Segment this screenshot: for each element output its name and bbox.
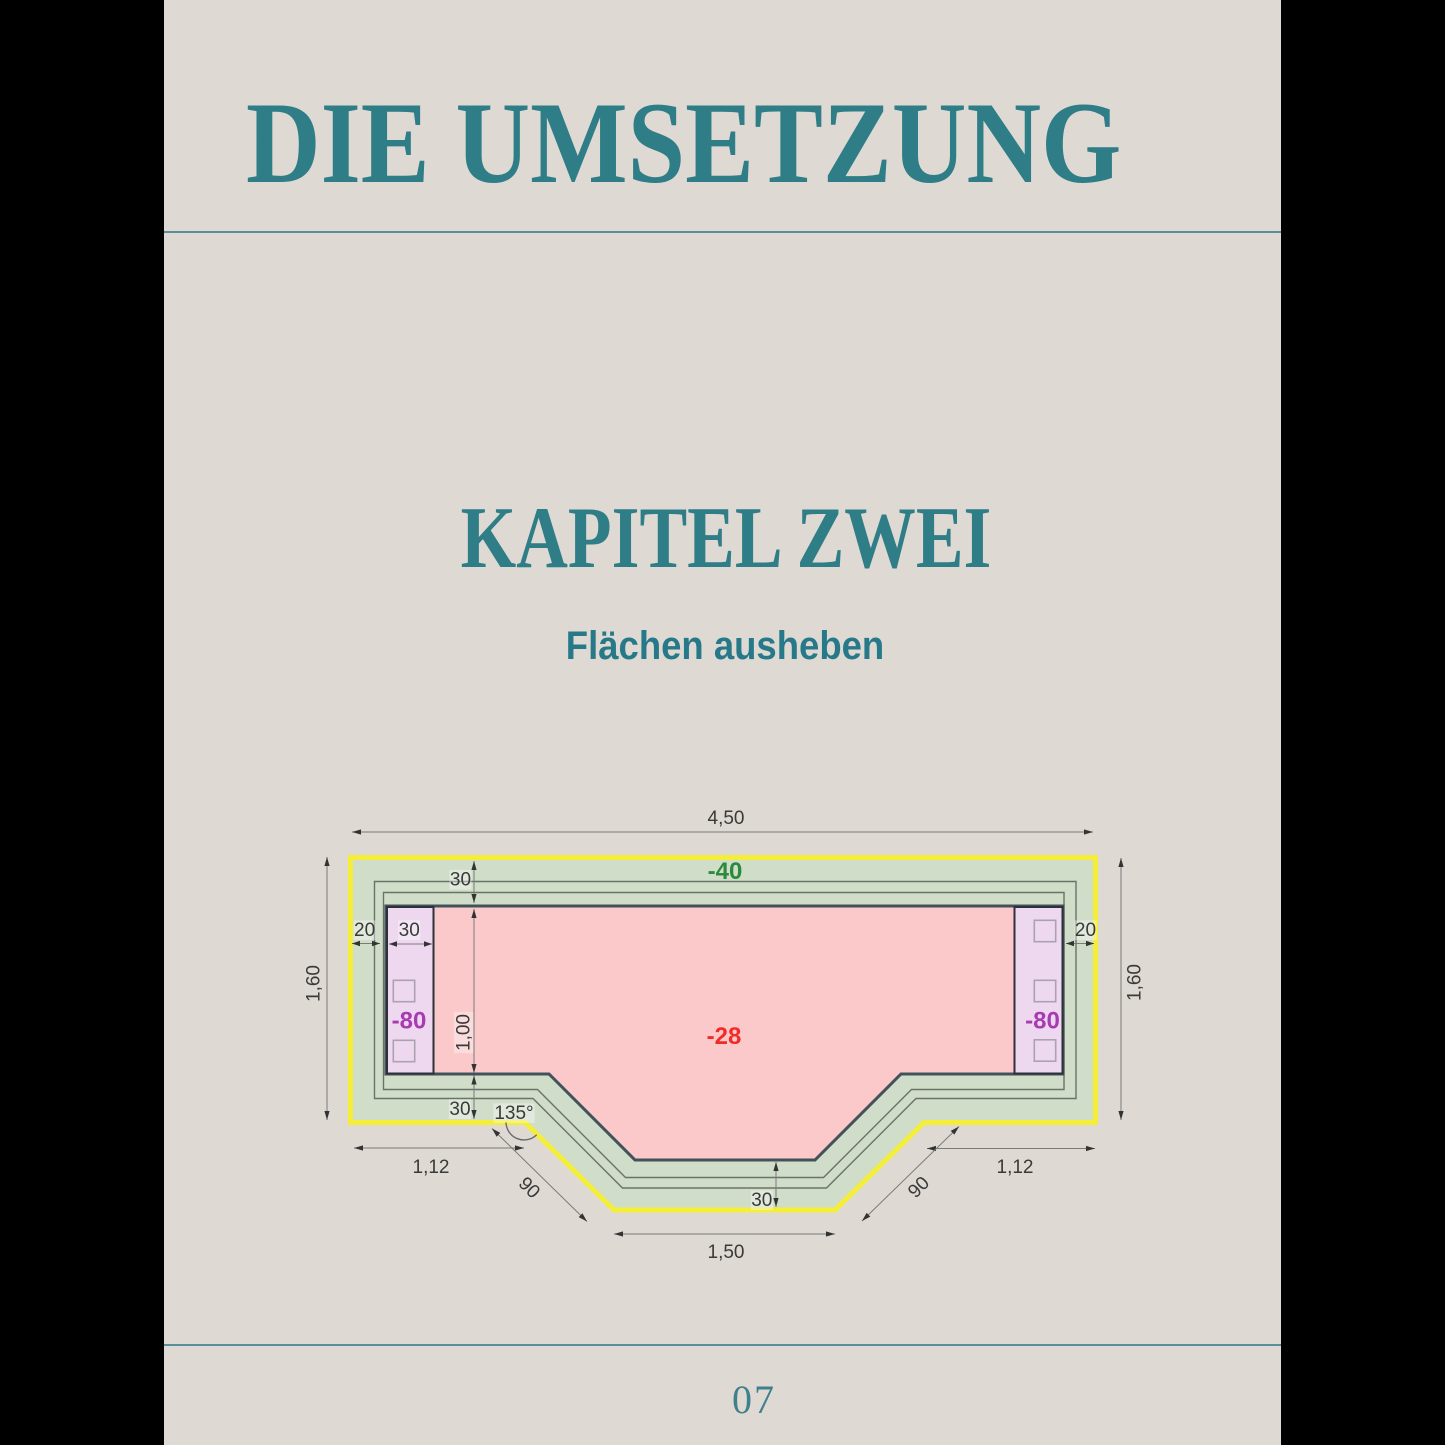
svg-text:-28: -28 [707,1023,742,1050]
svg-text:-80: -80 [392,1008,427,1035]
svg-text:-40: -40 [708,858,743,885]
svg-text:135°: 135° [494,1103,533,1124]
svg-text:20: 20 [354,920,375,941]
svg-text:1,50: 1,50 [708,1242,745,1263]
svg-text:1,12: 1,12 [997,1157,1034,1178]
svg-text:30: 30 [449,1099,470,1120]
svg-text:90: 90 [514,1173,544,1203]
svg-text:20: 20 [1075,920,1096,941]
svg-text:1,12: 1,12 [413,1157,450,1178]
svg-text:4,50: 4,50 [708,808,745,829]
svg-text:30: 30 [399,920,420,941]
svg-text:30: 30 [751,1190,772,1211]
svg-text:1,60: 1,60 [1125,964,1146,1001]
svg-text:30: 30 [450,870,471,891]
svg-text:-80: -80 [1025,1008,1060,1035]
svg-text:90: 90 [904,1173,934,1203]
svg-text:1,00: 1,00 [454,1014,475,1051]
svg-text:1,60: 1,60 [304,965,325,1002]
